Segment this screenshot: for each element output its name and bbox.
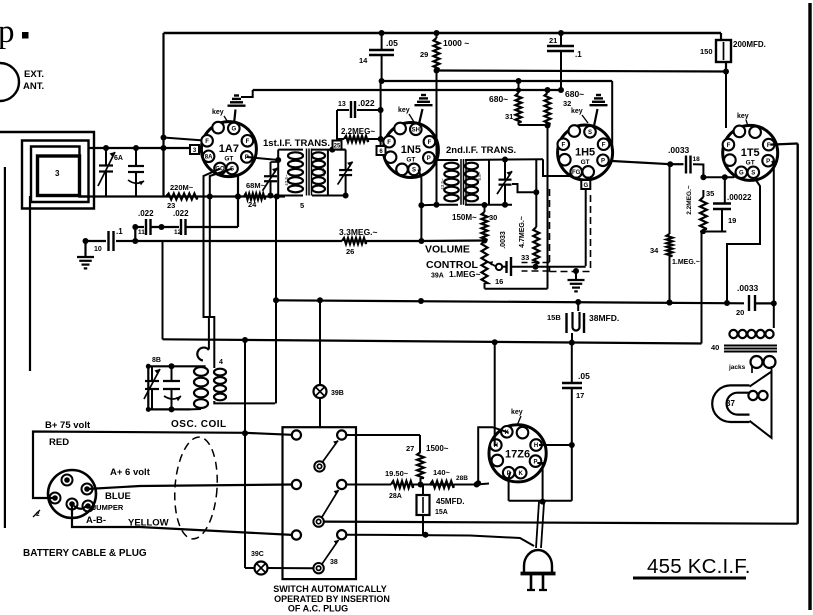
svg-text:68M~: 68M~ [246,181,266,190]
svg-text:11: 11 [138,229,145,236]
svg-text:27: 27 [406,444,414,453]
svg-text:YELLOW: YELLOW [128,518,169,529]
svg-text:3.3MEG.~: 3.3MEG.~ [339,227,378,237]
svg-text:1T5: 1T5 [741,147,760,159]
svg-text:8A: 8A [205,155,213,161]
svg-text:.0033: .0033 [668,145,690,155]
svg-text:F: F [428,140,432,146]
svg-text:1A7: 1A7 [219,143,239,155]
svg-text:A+ 6 volt: A+ 6 volt [110,467,151,478]
svg-text:GT: GT [746,159,755,166]
svg-text:1.MEG~: 1.MEG~ [449,269,480,279]
svg-text:EXT.: EXT. [24,69,44,80]
svg-text:6.8~: 6.8~ [321,167,326,176]
svg-text:19.50~: 19.50~ [385,469,409,478]
svg-text:17: 17 [576,391,584,400]
svg-text:P: P [427,156,431,162]
svg-text:F: F [387,140,391,146]
svg-text:G: G [231,127,236,133]
svg-text:F: F [602,142,606,148]
svg-text:200MFD.: 200MFD. [733,40,766,49]
svg-text:OPERATED BY INSERTION: OPERATED BY INSERTION [274,594,390,604]
svg-text:43.5~: 43.5~ [440,178,445,190]
svg-text:455 KC.I.F.: 455 KC.I.F. [647,555,751,578]
svg-text:220M~: 220M~ [170,183,194,192]
svg-text:P: P [766,159,770,165]
svg-text:.022: .022 [138,209,154,218]
svg-text:18: 18 [693,156,701,163]
svg-text:.1: .1 [575,50,582,59]
svg-text:38MFD.: 38MFD. [589,313,619,323]
svg-text:12: 12 [174,229,182,236]
svg-text:.05: .05 [386,38,398,48]
svg-text:23: 23 [167,201,175,210]
svg-text:OF A.C. PLUG: OF A.C. PLUG [288,604,348,614]
svg-text:1st.I.F. TRANS.: 1st.I.F. TRANS. [263,138,330,149]
svg-text:10: 10 [94,246,102,253]
svg-text:1500~: 1500~ [426,444,449,453]
svg-text:33: 33 [521,253,529,262]
svg-text:3: 3 [55,169,60,178]
svg-text:680~: 680~ [565,89,584,99]
svg-text:150: 150 [700,47,713,56]
svg-text:G: G [739,171,744,177]
svg-text:.05: .05 [578,371,590,381]
svg-text:21: 21 [549,36,557,45]
svg-text:4: 4 [219,359,223,366]
svg-text:8B: 8B [152,357,161,364]
svg-text:B+ 75 volt: B+ 75 volt [45,420,91,431]
svg-text:key: key [212,109,224,116]
svg-text:BATTERY CABLE & PLUG: BATTERY CABLE & PLUG [23,548,147,559]
svg-text:30: 30 [489,213,497,222]
svg-text:40: 40 [711,343,719,352]
svg-text:26: 26 [346,247,354,256]
svg-text:F: F [246,139,250,145]
svg-text:P: P [533,459,537,465]
svg-text:SWITCH AUTOMATICALLY: SWITCH AUTOMATICALLY [273,584,387,594]
svg-text:F: F [727,143,731,149]
svg-text:A-B-: A-B- [86,515,106,526]
svg-text:K: K [519,471,524,477]
svg-text:key: key [737,113,749,120]
svg-text:RED: RED [49,437,69,448]
svg-text:14: 14 [359,56,368,65]
svg-text:1N5: 1N5 [401,144,421,156]
svg-text:31: 31 [505,112,513,121]
svg-text:19: 19 [728,216,736,225]
svg-text:H: H [534,443,538,449]
svg-text:29: 29 [420,50,428,59]
svg-text:.00022: .00022 [727,193,752,202]
svg-text:BLUE: BLUE [105,491,131,502]
svg-text:OSC. COIL: OSC. COIL [171,419,227,430]
svg-text:p: p [0,14,15,50]
svg-text:35: 35 [706,189,714,198]
svg-text:37: 37 [726,399,735,408]
svg-text:6A: 6A [114,155,123,162]
svg-text:.1: .1 [116,227,123,236]
svg-text:45MFD.: 45MFD. [436,497,464,506]
svg-text:150M~: 150M~ [452,213,477,222]
svg-text:FG: FG [572,170,581,176]
svg-text:F: F [205,139,209,145]
svg-text:G: G [583,183,588,189]
svg-text:1.MEG.~: 1.MEG.~ [672,259,700,266]
svg-text:key: key [571,108,583,115]
svg-text:key: key [511,409,523,416]
svg-text:GT: GT [581,159,590,166]
svg-text:16: 16 [495,277,503,286]
svg-text:.0033: .0033 [737,283,759,293]
svg-text:key: key [398,107,410,114]
svg-text:2.2MEG.~: 2.2MEG.~ [686,185,693,215]
svg-text:1000 ~: 1000 ~ [443,38,469,48]
svg-text:140~: 140~ [433,468,451,477]
svg-text:SH: SH [412,128,420,134]
svg-text:1H5: 1H5 [575,147,595,159]
svg-text:28A: 28A [389,493,402,500]
svg-text:39B: 39B [331,390,344,397]
svg-text:VOLUME: VOLUME [425,244,470,256]
svg-text:24: 24 [248,200,257,209]
svg-text:S: S [412,168,416,174]
svg-text:17Z6: 17Z6 [505,448,530,460]
svg-text:.022: .022 [358,98,375,108]
svg-text:15A: 15A [435,509,448,516]
svg-text:680~: 680~ [489,94,508,104]
svg-text:2.2MEG~: 2.2MEG~ [341,127,375,136]
svg-text:28B: 28B [456,475,468,482]
svg-text:S: S [751,171,755,177]
svg-text:.0033: .0033 [500,231,507,249]
svg-text:P: P [601,159,605,165]
svg-text:GT: GT [406,157,415,164]
svg-text:ANT.: ANT. [23,81,44,92]
svg-text:.022: .022 [173,209,189,218]
svg-text:13: 13 [338,101,346,108]
svg-text:39C: 39C [251,551,264,558]
svg-text:6.8~: 6.8~ [477,171,482,180]
svg-text:5: 5 [300,201,304,210]
svg-text:32: 32 [563,99,571,108]
svg-text:34: 34 [650,246,659,255]
svg-text:38: 38 [330,559,338,566]
svg-text:JUMPER: JUMPER [92,503,124,512]
svg-text:43.5~: 43.5~ [284,174,289,186]
svg-text:2nd.I.F. TRANS.: 2nd.I.F. TRANS. [446,145,516,156]
svg-text:jacks: jacks [728,364,746,371]
svg-text:S: S [588,130,592,136]
svg-text:39A: 39A [431,273,444,280]
svg-text:4.7MEG.~: 4.7MEG.~ [519,216,526,248]
svg-text:20: 20 [736,308,744,317]
svg-text:F: F [561,142,565,148]
svg-text:GT: GT [224,156,233,163]
svg-text:15B: 15B [547,313,561,322]
